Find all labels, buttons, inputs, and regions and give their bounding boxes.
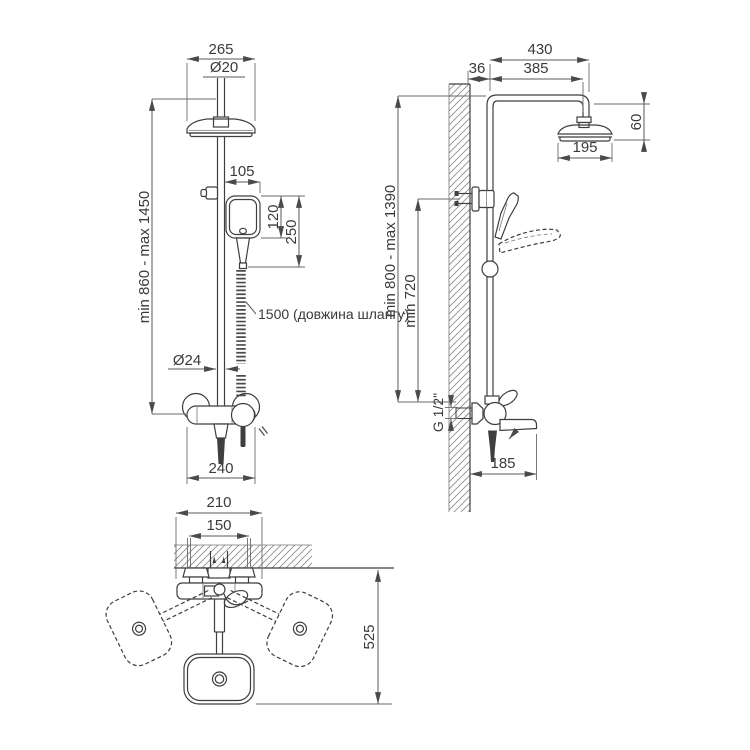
mixer-top xyxy=(177,583,262,611)
dim-hand-head-height: 120 xyxy=(265,204,282,229)
drawing-page: 265 Ø20 min 860 - max 1450 105 120 250 1… xyxy=(0,0,750,750)
dim-riser-min-height: min 720 xyxy=(402,274,419,327)
dim-riser-diameter: Ø24 xyxy=(173,352,201,369)
hand-shower-front xyxy=(226,196,260,269)
dim-mixer-width: 240 xyxy=(208,460,233,477)
side-view: 430 36 385 60 195 min 800 - max 1390 mi xyxy=(382,41,650,512)
top-view: 210 150 525 xyxy=(101,494,394,704)
dim-overhead-width: 265 xyxy=(208,41,233,58)
dim-centers-distance: 150 xyxy=(206,517,231,534)
slider-knob-side xyxy=(482,261,498,277)
dim-hand-shower-length: 250 xyxy=(283,219,300,244)
dim-arm-reach: 385 xyxy=(523,60,548,77)
overhead-shower-front xyxy=(187,117,255,137)
dim-body-width: 210 xyxy=(206,494,231,511)
front-view: 265 Ø20 min 860 - max 1450 105 120 250 1… xyxy=(136,41,409,484)
front-dimensions: 265 Ø20 min 860 - max 1450 105 120 250 1… xyxy=(136,41,409,484)
dim-head-drop: 60 xyxy=(628,114,645,131)
side-dimensions: 430 36 385 60 195 min 800 - max 1390 mi xyxy=(382,41,650,480)
dim-height-range-front: min 860 - max 1450 xyxy=(136,191,153,324)
mixer-handle-front xyxy=(232,404,255,427)
dim-arm-reach-total: 430 xyxy=(527,41,552,58)
slider-bracket xyxy=(201,187,218,199)
dim-pipe-diameter: Ø20 xyxy=(210,59,238,76)
dim-height-range-side: min 800 - max 1390 xyxy=(382,185,399,318)
swivel-pivot xyxy=(214,584,225,595)
dim-spout-reach: 185 xyxy=(490,455,515,472)
dim-head-diameter: 195 xyxy=(572,139,597,156)
overhead-shower-top xyxy=(184,599,254,704)
mixer-spout-front xyxy=(214,424,228,438)
wall-section-top xyxy=(174,545,394,568)
dim-hand-shower-offset: 105 xyxy=(229,163,254,180)
mixer-spout-side xyxy=(500,420,537,431)
dim-swivel-reach: 525 xyxy=(361,624,378,649)
shower-dimension-drawing: 265 Ø20 min 860 - max 1450 105 120 250 1… xyxy=(0,0,750,750)
wall-section-side xyxy=(449,84,470,512)
dim-wall-offset: 36 xyxy=(469,60,486,77)
dim-thread: G 1/2" xyxy=(430,393,446,432)
